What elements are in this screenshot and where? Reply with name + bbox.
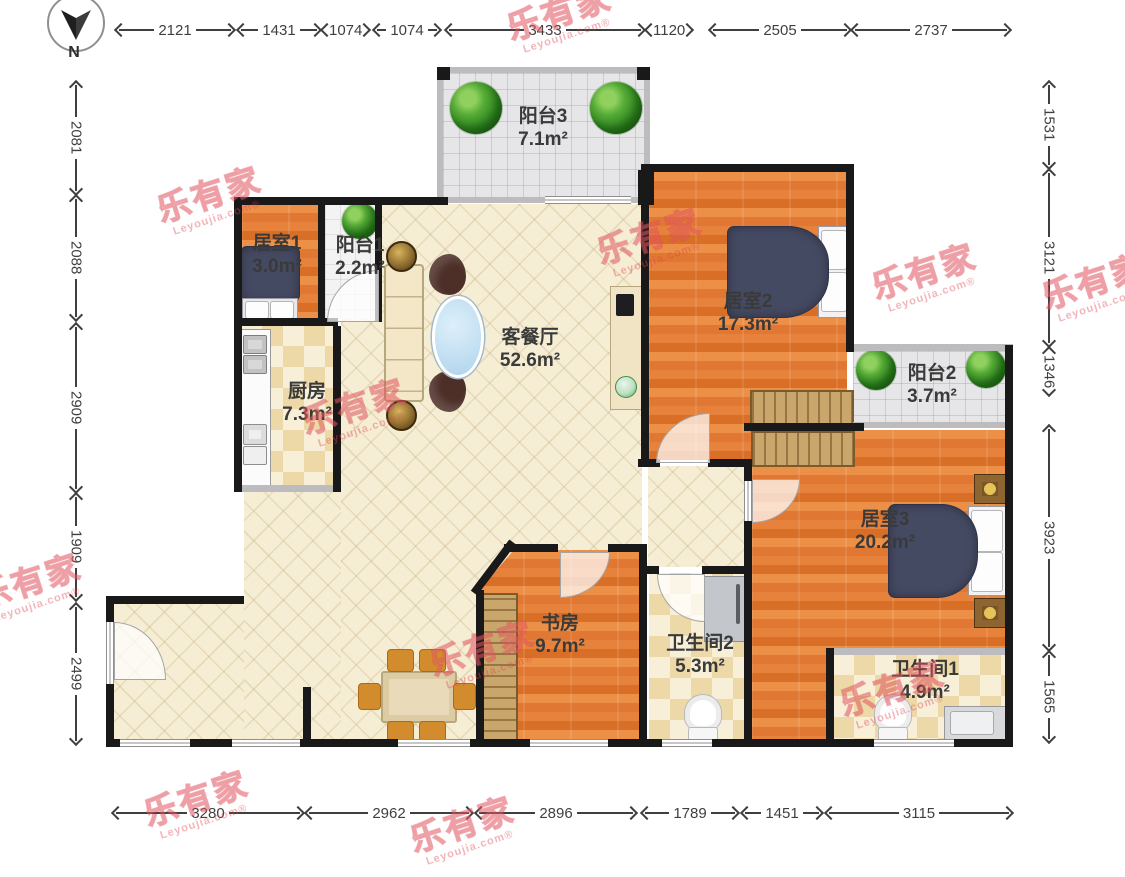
wardrobe [751,431,855,467]
wall-segment [234,197,448,205]
floor-plan: N 2121 1431 1074 1074 3433 1120 2505 273… [0,0,1125,844]
balcony3-sliding-door [545,196,631,204]
room-area: 5.3m² [648,655,752,678]
dim-right-5: 1565 [1040,652,1058,742]
window [530,739,608,747]
wall-segment [234,326,242,492]
room-area: 4.9m² [873,681,977,704]
watermark-brand: 乐有家 [845,223,1002,315]
balcony3-corner-post [437,67,450,80]
tv-icon [616,294,634,316]
watermark: 乐有家Leyoujia.com® [383,776,543,877]
dim-value: 2896 [535,806,576,821]
room-name: 阳台3 [493,105,593,128]
bed-pillow [245,301,269,319]
wall-segment [106,596,244,604]
dim-left-3: 2909 [67,324,85,492]
window [232,739,300,747]
dim-top-7: 2505 [710,21,850,39]
dim-value: 3433 [524,23,565,38]
balcony2-window-sill [853,422,1006,428]
bedroom3-door-frame [744,481,752,521]
wall-segment [744,459,752,483]
watermark: 乐有家Leyoujia.com® [1015,233,1125,334]
window [874,739,954,747]
entry-door-frame [106,622,114,684]
watermark-brand: 乐有家 [117,750,274,842]
dim-top-3: 1074 [322,21,372,39]
wall-segment [234,318,338,326]
dim-bottom-2: 2962 [306,804,472,822]
wall-segment [641,172,649,466]
room-label-balcony1: 阳台12.2m² [315,234,405,280]
wall-segment [106,596,114,624]
dim-value: 2088 [69,237,84,278]
dim-top-2: 1431 [238,21,320,39]
armchair [429,254,466,295]
room-area: 3.7m² [882,385,982,408]
dim-top-8: 2737 [852,21,1010,39]
dim-right-2: 3121 [1040,170,1058,346]
living-room-floor [244,490,341,740]
dining-chair [419,649,446,672]
ottoman [386,400,417,431]
room-label-kitchen: 厨房7.3m² [262,380,352,426]
wall-segment [702,566,752,574]
room-name: 居室1 [232,232,322,255]
bathroom1-threshold [834,648,1006,655]
dim-value: 2505 [759,23,800,38]
room-name: 厨房 [262,380,352,403]
kitchen-sink [243,335,267,354]
sink-basin [950,711,994,735]
watermark: 乐有家Leyoujia.com® [0,533,110,634]
dim-top-4: 1074 [374,21,440,39]
room-name: 卫生间1 [873,658,977,681]
dim-value: 2081 [69,117,84,158]
dim-top-1: 2121 [116,21,234,39]
window [398,739,470,747]
kitchen-threshold [242,485,334,492]
north-arrow-icon [49,0,103,50]
room-label-balcony3: 阳台37.1m² [493,105,593,151]
room-label-bedroom1: 居室13.0m² [232,232,322,278]
hallway-floor [648,466,745,567]
shower-head-icon [736,584,740,624]
room-name: 卫生间2 [648,632,752,655]
compass-north-label: N [47,44,101,62]
sofa [384,264,424,402]
wall-segment [744,423,864,431]
dim-top-5: 3433 [446,21,644,39]
dim-right-4: 3923 [1040,426,1058,650]
watermark-brand: 乐有家 [0,533,107,625]
dim-value: 2909 [69,387,84,428]
dim-left-5: 2499 [67,604,85,744]
dim-value: 2962 [368,806,409,821]
dim-right-3: 1346 [1040,348,1058,422]
room-name: 居室2 [698,290,798,313]
room-label-bedroom3: 居室320.2m² [835,508,935,554]
room-name: 书房 [512,612,608,635]
dim-value: 3923 [1042,517,1057,558]
dim-value: 1074 [386,23,427,38]
nightstand [974,474,1006,504]
dining-chair [387,649,414,672]
room-area: 2.2m² [315,257,405,280]
dim-bottom-5: 1451 [742,804,822,822]
dim-bottom-6: 3115 [826,804,1012,822]
dim-right-1: 1531 [1040,82,1058,168]
balcony2-railing [853,344,1013,351]
wall-segment [106,684,114,747]
dim-left-1: 2081 [67,82,85,194]
room-area: 7.3m² [262,403,352,426]
room-label-bathroom2: 卫生间25.3m² [648,632,752,678]
kitchen-sink [243,355,267,374]
room-label-study: 书房9.7m² [512,612,608,658]
watermark-brand: 乐有家 [1015,233,1125,325]
room-area: 9.7m² [512,635,608,658]
room-name: 阳台1 [315,234,405,257]
wall-segment [639,544,647,747]
stove [243,446,267,465]
watermark: 乐有家Leyoujia.com® [845,223,1005,324]
watermark-brand: 乐有家 [383,776,540,868]
wall-segment [1005,345,1013,747]
dining-table [381,671,457,723]
dim-value: 1789 [669,806,710,821]
room-area: 52.6m² [480,349,580,372]
wall-segment [826,648,834,747]
room-name: 客餐厅 [480,326,580,349]
wall-segment [641,164,853,172]
dining-chair [453,683,476,710]
dim-value: 1451 [761,806,802,821]
room-area: 17.3m² [698,313,798,336]
room-area: 20.2m² [835,531,935,554]
dim-value: 2121 [154,23,195,38]
dim-value: 2499 [69,653,84,694]
wall-segment [303,687,311,739]
window [120,739,190,747]
wall-segment [476,590,484,747]
bed-pillow [270,301,294,319]
room-name: 居室3 [835,508,935,531]
dim-value: 1909 [69,526,84,567]
stove [243,424,267,445]
dim-value: 1565 [1042,676,1057,717]
room-label-balcony2: 阳台23.7m² [882,362,982,408]
nightstand [974,598,1006,628]
plant-pot-icon [615,376,637,398]
watermark: 乐有家Leyoujia.com® [117,750,277,851]
dim-value: 1531 [1042,104,1057,145]
room-label-living-dining: 客餐厅52.6m² [480,326,580,372]
room-area: 3.0m² [232,255,322,278]
dim-value: 2737 [910,23,951,38]
window [662,739,712,747]
balcony3-corner-post [637,67,650,80]
dim-value: 3115 [899,806,939,821]
room-name: 阳台2 [882,362,982,385]
dim-value: 1431 [258,23,299,38]
dim-top-6: 1120 [646,21,706,39]
dim-value: 3121 [1042,237,1057,278]
dim-left-2: 2088 [67,196,85,320]
wall-segment [641,566,659,574]
dim-left-4: 1909 [67,494,85,600]
wall-segment [846,164,854,352]
coffee-table [432,296,484,378]
room-label-bathroom1: 卫生间14.9m² [873,658,977,704]
watermark-site: Leyoujia.com® [859,266,1005,324]
dining-chair [358,683,381,710]
dim-bottom-4: 1789 [642,804,738,822]
watermark-site: Leyoujia.com® [397,819,543,877]
room-label-bedroom2: 居室217.3m² [698,290,798,336]
watermark-site: Leyoujia.com® [0,576,110,634]
room-area: 7.1m² [493,128,593,151]
dim-bottom-3: 2896 [476,804,636,822]
dim-value: 3280 [187,806,228,821]
dim-bottom-1: 3280 [113,804,303,822]
